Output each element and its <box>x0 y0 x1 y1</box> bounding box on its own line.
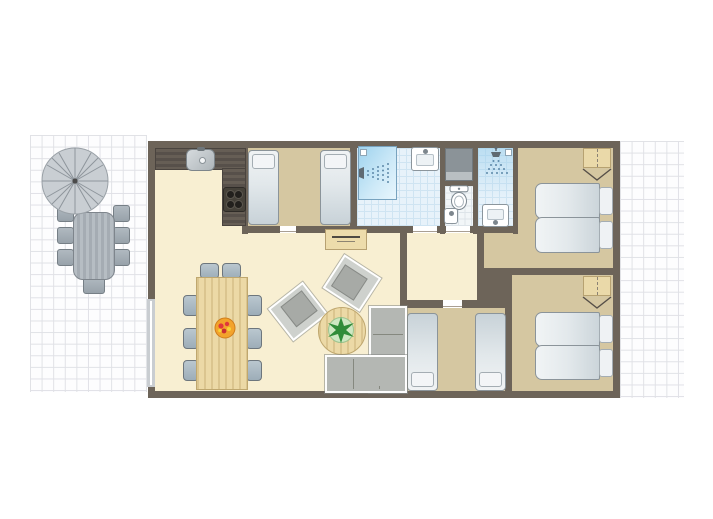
dining-chair <box>246 295 262 316</box>
washbasin-icon <box>411 147 439 171</box>
fruit-bowl-icon <box>214 317 236 339</box>
shower-control <box>360 149 367 156</box>
floor-plan-canvas <box>0 0 713 519</box>
wall <box>513 141 518 234</box>
washbasin-icon <box>482 204 509 227</box>
bedroom-right-top-floor <box>484 233 518 268</box>
wc-door <box>446 226 470 233</box>
wardrobe-door-swing <box>582 296 612 310</box>
garden-chair <box>113 205 130 222</box>
wall <box>350 141 357 234</box>
wardrobe-door-swing <box>582 168 612 182</box>
plant-icon <box>326 315 356 345</box>
wardrobe <box>583 276 611 296</box>
pillow <box>599 315 613 343</box>
hallway-floor <box>407 233 477 300</box>
double-bed-mattress <box>535 345 600 380</box>
shower-spray-icon <box>359 160 395 186</box>
bedroom-bottom-door <box>443 300 462 308</box>
sideboard <box>325 229 367 250</box>
sideboard-detail <box>337 241 355 242</box>
double-bed-mattress <box>535 217 600 253</box>
pillow <box>599 349 613 377</box>
pillow <box>599 221 613 249</box>
wall <box>505 268 512 391</box>
garden-chair <box>113 249 130 266</box>
single-bed <box>248 150 279 225</box>
single-bed <box>475 313 506 391</box>
parasol-icon <box>40 146 110 216</box>
corner-sofa-junction <box>372 358 400 386</box>
dining-chair <box>246 360 262 381</box>
left-facade-window <box>147 299 155 387</box>
overhead-shower-icon <box>481 146 511 182</box>
double-bed-mattress <box>535 183 600 219</box>
hand-basin-icon <box>444 208 458 224</box>
garden-chair <box>57 249 74 266</box>
kitchen-sink-icon <box>186 149 215 171</box>
pillow <box>599 187 613 215</box>
bathroom-door <box>413 226 437 233</box>
wall <box>473 141 478 234</box>
wardrobe <box>583 148 611 168</box>
dining-chair <box>246 328 262 349</box>
garden-chair <box>57 227 74 244</box>
right-terrace-tiles <box>620 141 684 398</box>
wall <box>477 268 613 275</box>
sideboard-detail <box>332 236 360 238</box>
cooktop-icon <box>223 187 246 212</box>
garden-table <box>73 212 115 280</box>
garden-chair <box>113 227 130 244</box>
double-bed-mattress <box>535 312 600 347</box>
utility-cabinet <box>445 148 473 181</box>
single-bed <box>320 150 351 225</box>
wall <box>477 233 484 268</box>
single-bed <box>407 313 438 391</box>
bedroom-top-door <box>280 226 296 233</box>
